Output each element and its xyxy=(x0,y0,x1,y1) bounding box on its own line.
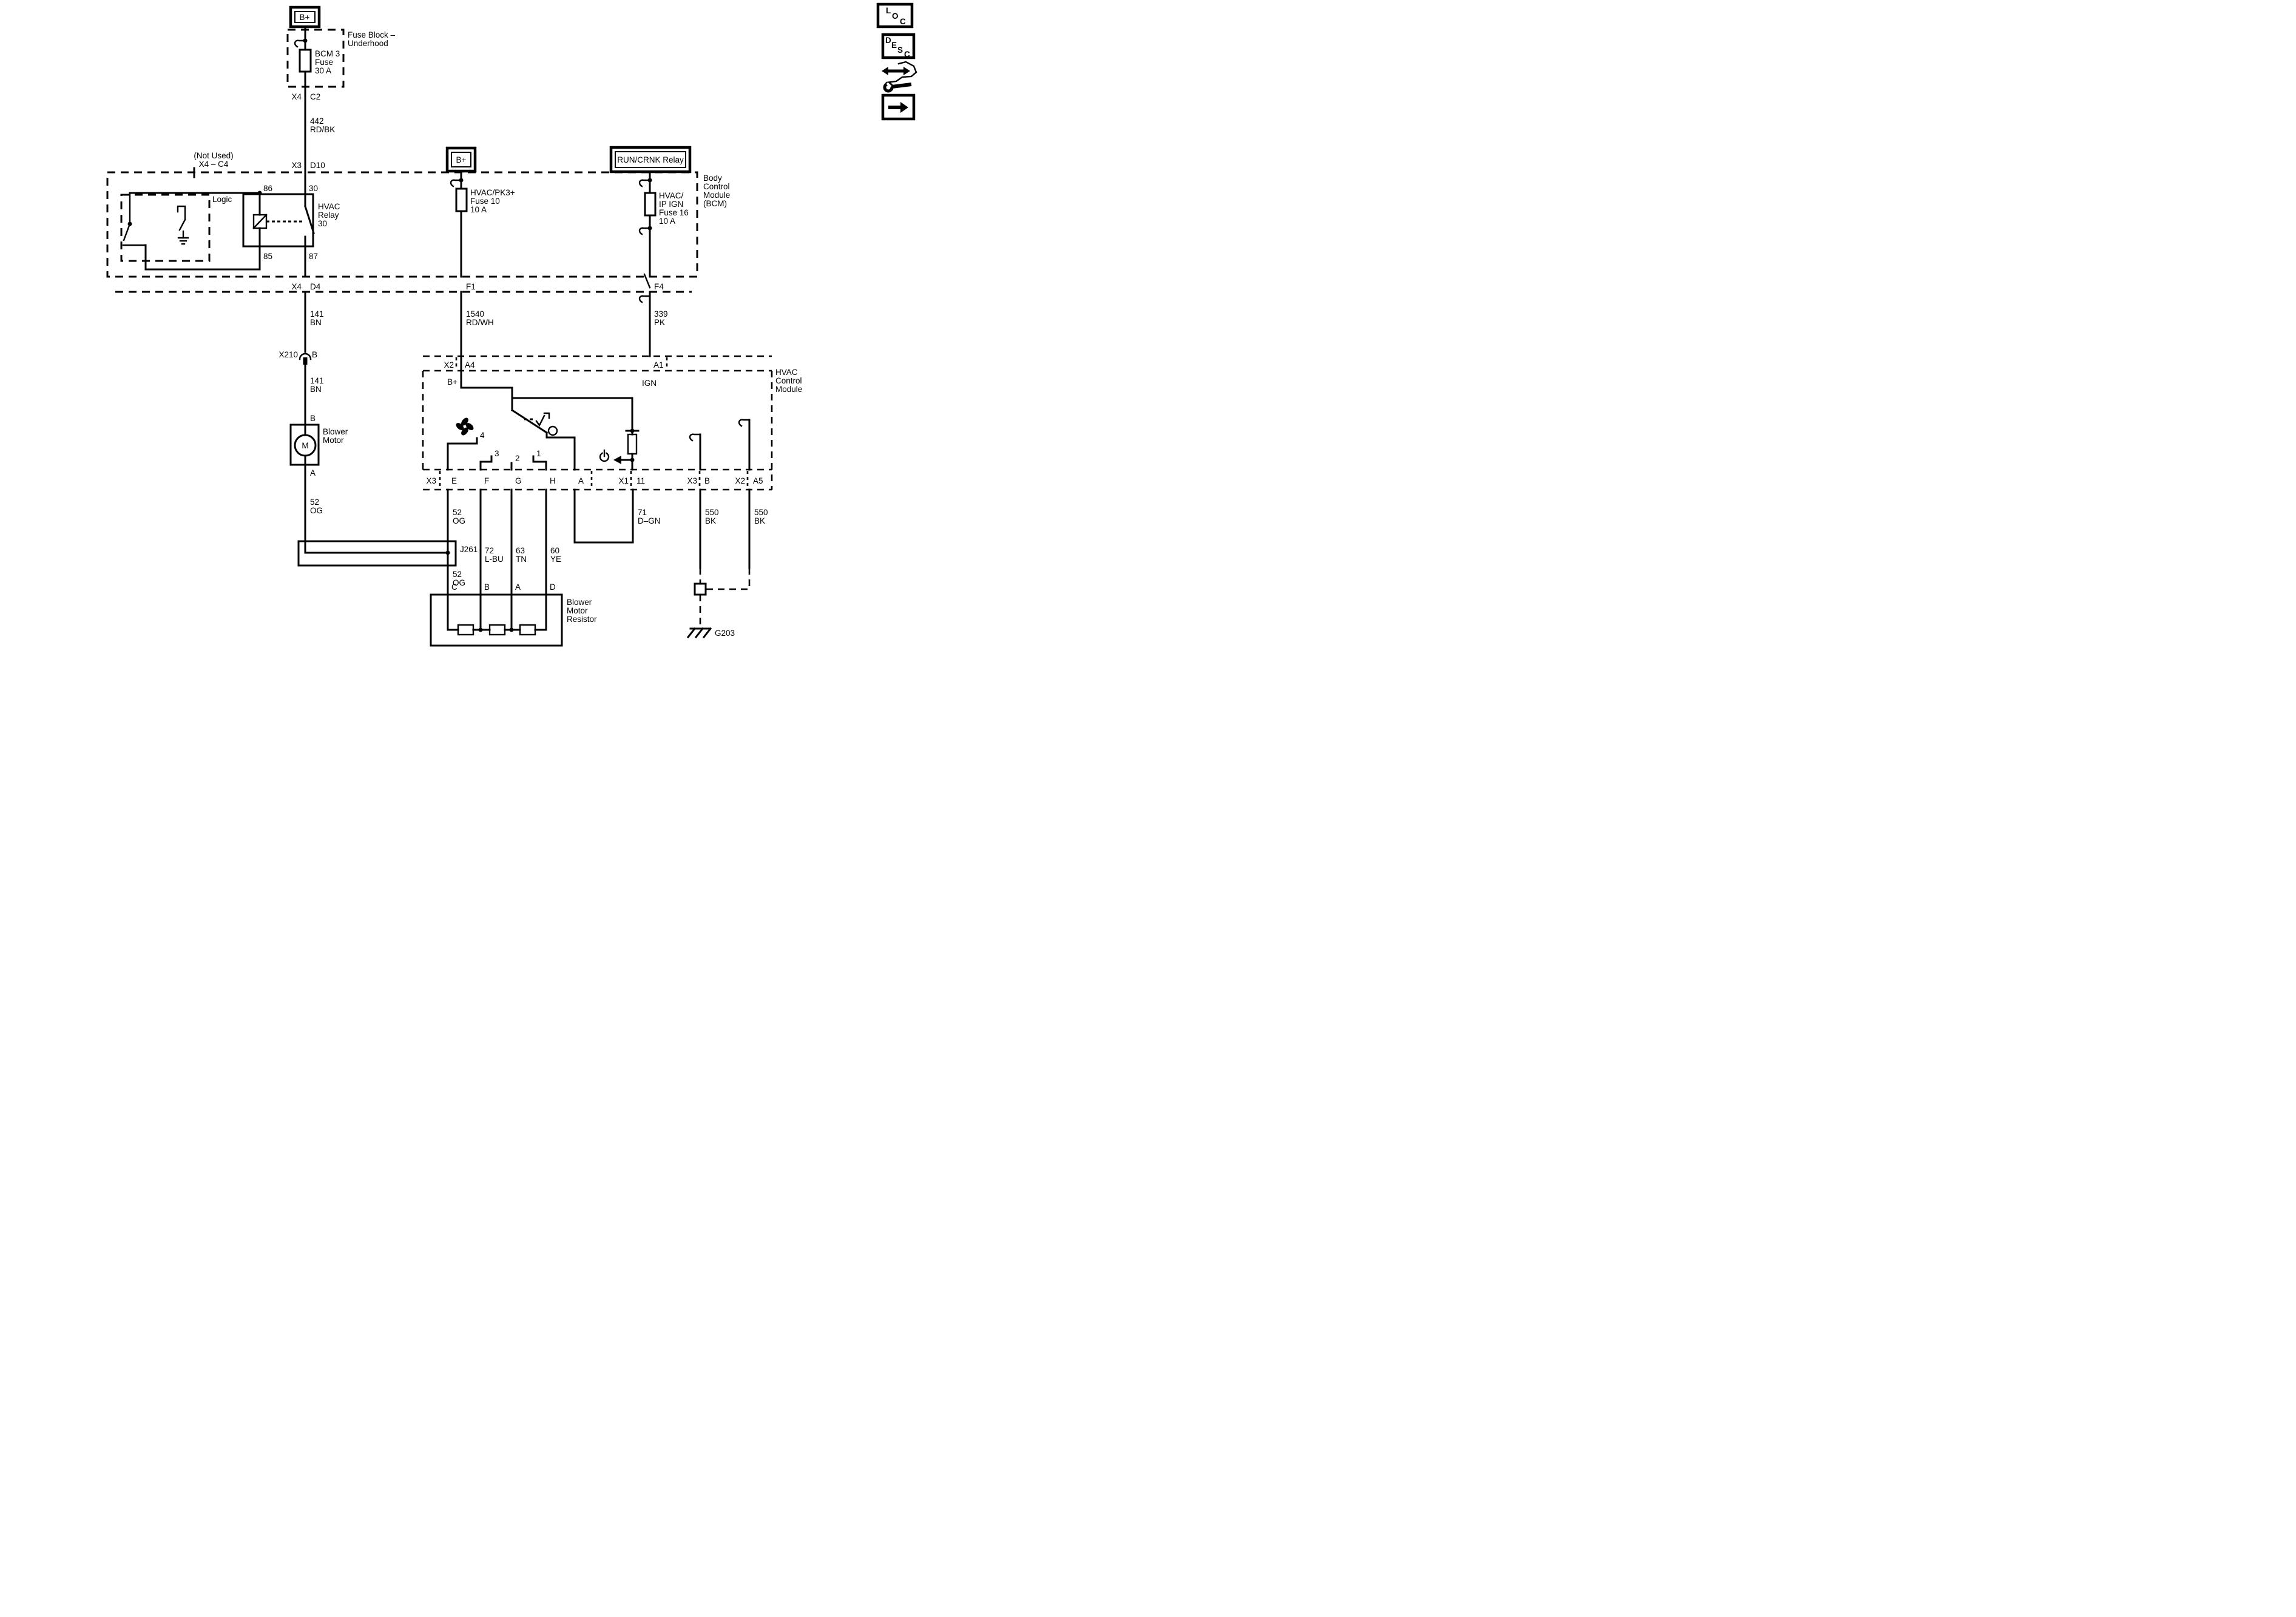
ign-fuse-symbol xyxy=(645,193,655,215)
wire-52a-code: 52 xyxy=(310,498,319,507)
pk3-fuse-symbol xyxy=(456,189,467,211)
strip-b: B xyxy=(704,476,710,485)
relay-pin-86: 86 xyxy=(263,184,272,193)
conn-a4-conn: X2 xyxy=(444,360,454,370)
wire-60-code: 60 xyxy=(550,546,559,555)
contact-2: 2 xyxy=(515,454,520,463)
desc-letter-4: C xyxy=(904,50,910,59)
wire-1540-color: RD/WH xyxy=(466,318,494,327)
wire-63-code: 63 xyxy=(516,546,525,555)
strip-g: G xyxy=(515,476,522,485)
conn-a1-pin: A1 xyxy=(653,360,664,370)
resistor-pin-a: A xyxy=(515,582,521,592)
conn-x3-label: X3 xyxy=(291,161,302,170)
wire-141a-code: 141 xyxy=(310,309,324,319)
sense-arrow-head xyxy=(613,456,621,464)
pk3-fuse-1: HVAC/PK3+ xyxy=(470,188,515,197)
power-icon xyxy=(600,450,609,461)
wire-52a-color: OG xyxy=(310,506,323,515)
resistor-box xyxy=(431,595,562,646)
arrow-right-icon xyxy=(900,102,908,113)
conn-a4-pin: A4 xyxy=(465,360,475,370)
relay-pin-85: 85 xyxy=(263,252,272,261)
bcm3-fuse-symbol xyxy=(300,50,311,72)
contact-4-wire xyxy=(448,438,477,470)
junction-dot-j261 xyxy=(446,551,450,555)
resistor-pin-d: D xyxy=(550,582,556,592)
resistor-pin-c: C xyxy=(451,582,458,592)
contact-4: 4 xyxy=(480,431,485,440)
resistor-element-1 xyxy=(458,625,473,635)
bcm-box: Body Control Module (BCM) Logic 86 30 85… xyxy=(107,171,730,302)
strip-e: E xyxy=(451,476,457,485)
lower-wiring: 52 OG J261 52 OG 72 L-BU 63 TN 60 YE 71 … xyxy=(299,490,768,638)
sidebar-buttons: L O C D E S C xyxy=(878,4,916,119)
bplus-label: B+ xyxy=(300,13,310,22)
strip-x2: X2 xyxy=(735,476,745,485)
conn-x210-label: X210 xyxy=(279,350,298,359)
resistor-pin-b: B xyxy=(484,582,490,592)
wire-141b-code: 141 xyxy=(310,376,324,385)
wire-85-return xyxy=(146,245,260,269)
ign-fuse-1: HVAC/ xyxy=(659,191,684,200)
wire-72-color: L-BU xyxy=(485,555,504,564)
strip-x3: X3 xyxy=(426,476,436,485)
bcm3-fuse-1: BCM 3 xyxy=(315,49,340,58)
desc-letter-2: E xyxy=(891,41,897,50)
contact-3: 3 xyxy=(495,449,499,458)
contact-3-wire xyxy=(481,456,491,470)
blower-name-1: Blower xyxy=(323,427,348,436)
bplus2-label: B+ xyxy=(456,155,467,164)
strip-a: A xyxy=(578,476,584,485)
relay-pin-30: 30 xyxy=(309,184,318,193)
contact-1: 1 xyxy=(536,449,541,458)
pin-c2-label: C2 xyxy=(310,92,320,101)
ign-fuse-3: Fuse 16 xyxy=(659,208,689,217)
relay-name-1: HVAC xyxy=(318,202,340,211)
not-used-2: X4 – C4 xyxy=(199,160,229,169)
ground-splice-box xyxy=(695,584,706,595)
strip-f: F xyxy=(484,476,489,485)
logic-label: Logic xyxy=(212,195,232,204)
loc-letter-1: L xyxy=(886,6,891,15)
bcm-name-3: Module xyxy=(703,191,730,200)
conn-x4d4-pin: D4 xyxy=(310,282,321,291)
desc-letter-1: D xyxy=(885,36,891,45)
blower-motor-column: 141 BN X210 B 141 BN B Blower Motor M A … xyxy=(279,292,348,541)
g203-label: G203 xyxy=(715,629,735,638)
wire-550a5-color: BK xyxy=(754,516,765,525)
wire-63-color: TN xyxy=(516,555,527,564)
resistor-name-1: Blower xyxy=(567,598,592,607)
bcm3-fuse-2: Fuse xyxy=(315,58,333,67)
module-name-2: Control xyxy=(775,376,802,385)
resistor-name-2: Motor xyxy=(567,606,588,615)
motor-m: M xyxy=(302,441,308,450)
loc-letter-2: O xyxy=(892,12,899,21)
wire-550b-code: 550 xyxy=(705,508,719,517)
internal-resistor-symbol xyxy=(628,434,636,454)
wire-442-code: 442 xyxy=(310,116,324,126)
bcm3-feed-column: B+ Fuse Block – Underhood BCM 3 Fuse 30 … xyxy=(194,7,395,177)
junction-dot xyxy=(303,39,308,43)
connector-hook-icon xyxy=(690,434,700,441)
conn-x210-pin: B xyxy=(312,350,317,359)
relay-pin-87: 87 xyxy=(309,252,318,261)
wire-71-color: D–GN xyxy=(638,516,661,525)
bcm3-fuse-3: 30 A xyxy=(315,66,331,75)
strip-11: 11 xyxy=(636,476,645,485)
next-page-button[interactable] xyxy=(883,95,914,119)
resistor-element-2 xyxy=(490,625,505,635)
wire-141b-color: BN xyxy=(310,385,322,394)
pin-d10-label: D10 xyxy=(310,161,325,170)
wire-339-code: 339 xyxy=(654,309,668,319)
wire-52b-color: OG xyxy=(453,516,465,525)
chassis-ground-icon xyxy=(688,629,711,637)
bcm-name-4: (BCM) xyxy=(703,199,727,208)
bcm-name-1: Body xyxy=(703,174,722,183)
module-name-3: Module xyxy=(775,385,802,394)
pk3-fuse-3: 10 A xyxy=(470,205,487,214)
junction-dot-r2 xyxy=(510,628,514,632)
junction-dot-r1 xyxy=(479,628,483,632)
wire-442-color: RD/BK xyxy=(310,125,335,134)
module-name-1: HVAC xyxy=(775,368,798,377)
fan-switch-arm-foot xyxy=(547,433,575,470)
resistor-element-3 xyxy=(520,625,535,635)
conn-x4d4-conn: X4 xyxy=(291,282,302,291)
logic-box xyxy=(121,195,209,261)
wire-339-color: PK xyxy=(654,318,665,327)
desc-button[interactable]: D E S C xyxy=(883,35,914,59)
fuse-block-name-2: Underhood xyxy=(348,39,388,48)
wire-1540-code: 1540 xyxy=(466,309,484,319)
bcm-name-2: Control xyxy=(703,182,730,191)
wire-52b-code: 52 xyxy=(453,508,462,517)
ign-fuse-2: IP IGN xyxy=(659,200,683,209)
hvac-control-module: HVAC Control Module X2 A4 B+ A1 IGN 4 xyxy=(423,356,802,490)
switch-detent-check xyxy=(536,416,544,425)
switch-knob-circle xyxy=(549,427,557,435)
wrench-arrows-icon[interactable] xyxy=(882,62,916,91)
wire-52c-code: 52 xyxy=(453,570,462,579)
strip-h: H xyxy=(550,476,556,485)
desc-letter-3: S xyxy=(897,46,903,55)
strip-x1: X1 xyxy=(618,476,629,485)
net-bplus: B+ xyxy=(447,377,458,387)
relay-name-2: Relay xyxy=(318,211,339,220)
conn-x4-label: X4 xyxy=(291,92,302,101)
blower-name-2: Motor xyxy=(323,436,344,445)
contact-1-wire xyxy=(533,456,546,470)
pk3-source: B+ 1540 RD/WH xyxy=(447,148,494,356)
loc-button[interactable]: L O C xyxy=(878,4,912,27)
resistor-name-3: Resistor xyxy=(567,615,597,624)
connector-hook-icon xyxy=(739,420,749,426)
logic-gate-blade xyxy=(180,220,185,230)
relay-name-3: 30 xyxy=(318,219,327,228)
wire-71-code: 71 xyxy=(638,508,647,517)
relay-coil-diagonal xyxy=(254,215,266,228)
strip-x3b: X3 xyxy=(687,476,697,485)
wire-141a-color: BN xyxy=(310,318,322,327)
connector-hook-icon xyxy=(640,296,650,302)
blower-motor-resistor: C B A D Blower Motor Resistor xyxy=(431,582,597,646)
net-ign: IGN xyxy=(642,379,657,388)
conn-f1: F1 xyxy=(466,282,476,291)
fan-icon xyxy=(454,416,474,436)
fuse-block-name-1: Fuse Block – xyxy=(348,30,396,39)
j261-label: J261 xyxy=(460,545,478,554)
wire-550a5-code: 550 xyxy=(754,508,768,517)
blower-pin-a: A xyxy=(310,468,316,478)
wiring-diagram: B+ Fuse Block – Underhood BCM 3 Fuse 30 … xyxy=(0,0,919,647)
wire-550-a5-dashed xyxy=(706,568,749,589)
wire-550b-color: BK xyxy=(705,516,716,525)
loc-letter-3: C xyxy=(900,17,906,26)
wire-72-code: 72 xyxy=(485,546,494,555)
logic-switch-blade xyxy=(124,224,130,240)
conn-f4: F4 xyxy=(654,282,664,291)
pk3-fuse-2: Fuse 10 xyxy=(470,197,500,206)
logic-gate-symbol xyxy=(178,206,185,220)
ign-fuse-4: 10 A xyxy=(659,217,675,226)
strip-a5: A5 xyxy=(753,476,763,485)
runcrnk-label: RUN/CRNK Relay xyxy=(617,155,684,164)
blower-pin-b: B xyxy=(310,414,316,423)
not-used-1: (Not Used) xyxy=(194,151,233,160)
wire-71-loop xyxy=(575,490,633,542)
wire-60-color: YE xyxy=(550,555,561,564)
